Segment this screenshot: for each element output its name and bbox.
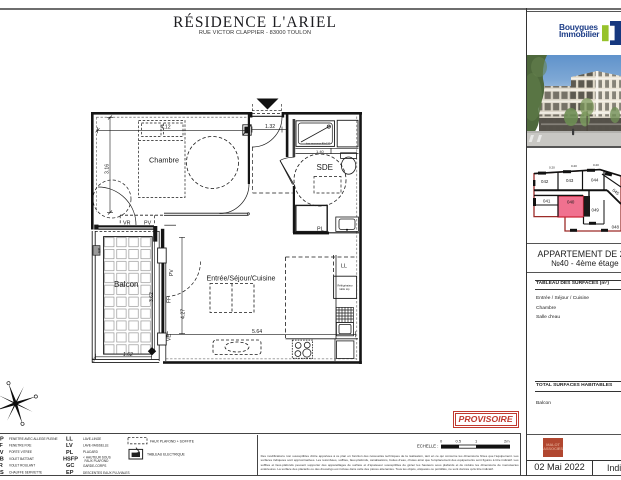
svg-text:LL: LL: [341, 264, 347, 270]
svg-text:1.32: 1.32: [265, 124, 275, 130]
svg-text:table top: table top: [340, 287, 351, 291]
svg-text:LV: LV: [66, 443, 73, 449]
svg-text:049: 049: [592, 208, 600, 213]
svg-text:1.62: 1.62: [123, 352, 133, 358]
svg-text:SDE: SDE: [317, 163, 333, 172]
svg-text:PV: PV: [144, 220, 152, 226]
svg-text:VR: VR: [0, 463, 3, 469]
svg-text:PORTE VITREE: PORTE VITREE: [9, 450, 32, 454]
svg-text:0.20: 0.20: [571, 164, 577, 168]
svg-text:VE: VE: [167, 334, 173, 341]
svg-text:4.12: 4.12: [161, 125, 171, 131]
svg-text:FF: FF: [167, 297, 173, 303]
svg-text:LL: LL: [66, 437, 73, 443]
svg-text:FENETRE AVEC ALLEGE PLEINE: FENETRE AVEC ALLEGE PLEINE: [9, 437, 58, 441]
svg-text:AP: AP: [0, 437, 4, 443]
svg-text:VB: VB: [0, 457, 4, 463]
svg-text:Entrée/Séjour/Cuisine: Entrée/Séjour/Cuisine: [207, 275, 276, 283]
svg-text:040: 040: [567, 200, 575, 205]
svg-text:4.27: 4.27: [181, 309, 187, 319]
svg-text:FAUX PLAFOND + SOFFITE: FAUX PLAFOND + SOFFITE: [150, 440, 195, 444]
svg-text:CS: CS: [0, 470, 4, 476]
svg-text:0: 0: [440, 438, 443, 443]
svg-text:TABLEAU ELECTRIQUE: TABLEAU ELECTRIQUE: [147, 453, 186, 457]
svg-text:3.16: 3.16: [105, 164, 111, 174]
svg-text:VOLET BATTANT: VOLET BATTANT: [9, 457, 34, 461]
svg-text:042: 042: [541, 179, 549, 184]
svg-text:EP: EP: [66, 470, 74, 476]
svg-text:GC: GC: [66, 463, 74, 469]
svg-text:041: 041: [543, 199, 551, 204]
svg-text:EP: EP: [98, 247, 102, 252]
svg-text:PV: PV: [169, 269, 175, 276]
svg-text:LAVE-LINGE: LAVE-LINGE: [83, 437, 101, 441]
svg-text:044: 044: [591, 177, 599, 182]
svg-text:048: 048: [612, 224, 620, 229]
svg-text:PLACARD: PLACARD: [83, 450, 99, 454]
svg-text:2m: 2m: [504, 438, 510, 443]
svg-text:DESCENTES EAUX PLUVIALES: DESCENTES EAUX PLUVIALES: [83, 471, 130, 475]
svg-text:HSFP: HSFP: [63, 457, 78, 463]
svg-text:GARDE-CORPS: GARDE-CORPS: [83, 464, 106, 468]
svg-text:043: 043: [566, 178, 574, 183]
svg-text:CHAUFFE SERVIETTE: CHAUFFE SERVIETTE: [9, 470, 42, 474]
svg-text:PV: PV: [0, 450, 4, 456]
svg-text:1: 1: [475, 438, 478, 443]
svg-text:5.64: 5.64: [252, 329, 262, 335]
svg-text:PL: PL: [66, 450, 74, 456]
svg-text:0.5: 0.5: [456, 438, 462, 443]
svg-text:Balcon: Balcon: [114, 280, 138, 289]
svg-text:LAVE-VAISSELLE: LAVE-VAISSELLE: [83, 444, 109, 448]
svg-text:1.40: 1.40: [316, 149, 325, 154]
svg-text:Chambre: Chambre: [149, 155, 179, 164]
svg-text:GC: GC: [92, 356, 96, 362]
svg-text:0.20: 0.20: [549, 165, 555, 169]
svg-text:FAUX PLAFOND: FAUX PLAFOND: [85, 459, 110, 463]
svg-text:VOLET ROULANT: VOLET ROULANT: [9, 464, 35, 468]
svg-text:FENETRE FIXE: FENETRE FIXE: [9, 444, 32, 448]
svg-text:0.20: 0.20: [593, 163, 599, 167]
svg-text:VR: VR: [123, 220, 131, 226]
svg-text:3.62: 3.62: [149, 292, 155, 302]
svg-text:ECHELLE :: ECHELLE :: [417, 444, 438, 449]
svg-text:PL: PL: [317, 227, 324, 233]
svg-text:bac receveur 80x120: bac receveur 80x120: [306, 142, 331, 146]
svg-text:FF: FF: [0, 443, 3, 449]
